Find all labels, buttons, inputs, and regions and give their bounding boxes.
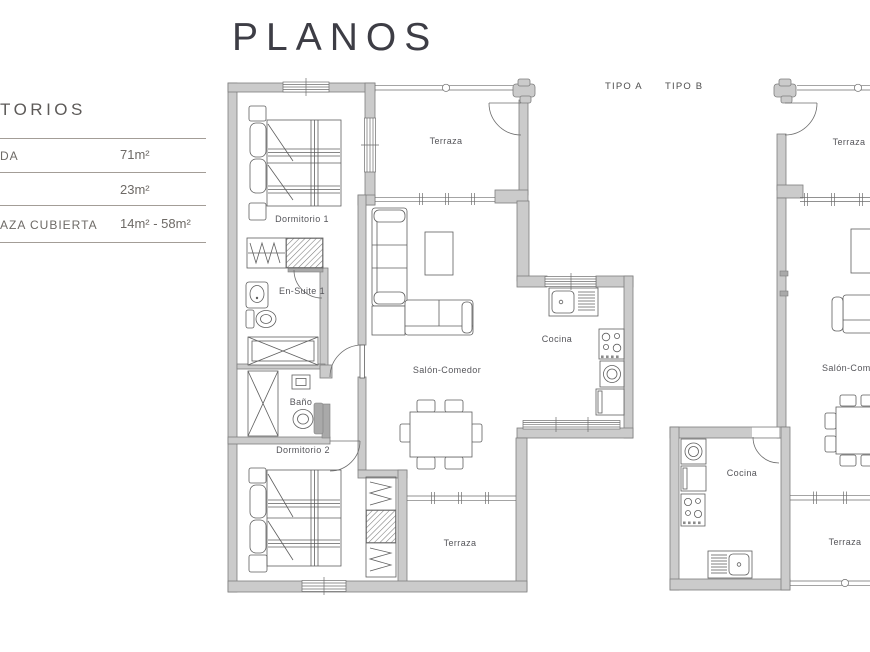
dining-set — [400, 400, 482, 469]
legend-row-value: 14m² - 58m² — [120, 216, 191, 231]
floorplan-page: { "page_title": "PLANOS", "legend": { "h… — [0, 0, 870, 652]
entry-corner-ornament — [774, 79, 796, 103]
kitchen-fixtures — [549, 288, 624, 415]
bed-dormitorio2 — [249, 468, 341, 572]
room-label-terraza-top: Terraza — [833, 137, 866, 147]
windows-tipo-b — [790, 84, 870, 586]
legend-row-label: AZA CUBIERTA — [0, 218, 98, 232]
room-label-cocina: Cocina — [727, 468, 757, 478]
legend-heading: TORIOS — [0, 100, 86, 120]
room-label-terraza-bottom: Terraza — [829, 537, 862, 547]
room-label-salon: Salón-Comedor — [413, 365, 481, 375]
kitchen-fixtures — [681, 439, 752, 578]
bed-dormitorio1 — [249, 106, 341, 220]
legend-divider — [0, 138, 206, 139]
coffee-table — [425, 232, 453, 275]
legend-divider — [0, 205, 206, 206]
room-label-ensuite1: En-Suite 1 — [279, 286, 325, 296]
room-label-salon: Salón-Com — [822, 363, 870, 373]
sofa-set — [372, 208, 473, 335]
floorplan-tipo-a: Terraza Dormitorio 1 En-Suite 1 Salón-Co… — [222, 74, 638, 600]
room-label-dormitorio2: Dormitorio 2 — [276, 445, 330, 455]
room-label-dormitorio1: Dormitorio 1 — [275, 214, 329, 224]
room-label-terraza-bottom: Terraza — [444, 538, 477, 548]
page-title: PLANOS — [232, 16, 438, 60]
legend-row-label: DA — [0, 149, 19, 163]
wardrobe-dormitorio2 — [366, 477, 396, 577]
room-label-bano: Baño — [290, 397, 313, 407]
dining-set — [825, 395, 870, 466]
room-label-terraza-top: Terraza — [430, 136, 463, 146]
legend-divider — [0, 242, 206, 243]
legend-divider — [0, 172, 206, 173]
floorplan-tipo-b: Terraza Salón-Com Cocina Terraza — [655, 74, 870, 600]
legend-row-value: 71m² — [120, 147, 150, 162]
entry-corner-ornament — [513, 79, 535, 103]
sofa-set — [832, 229, 870, 333]
wardrobe-dormitorio1 — [247, 238, 323, 268]
room-labels-tipo-b: Terraza Salón-Com Cocina Terraza — [727, 137, 870, 547]
legend-row-value: 23m² — [120, 182, 150, 197]
room-label-cocina: Cocina — [542, 334, 572, 344]
